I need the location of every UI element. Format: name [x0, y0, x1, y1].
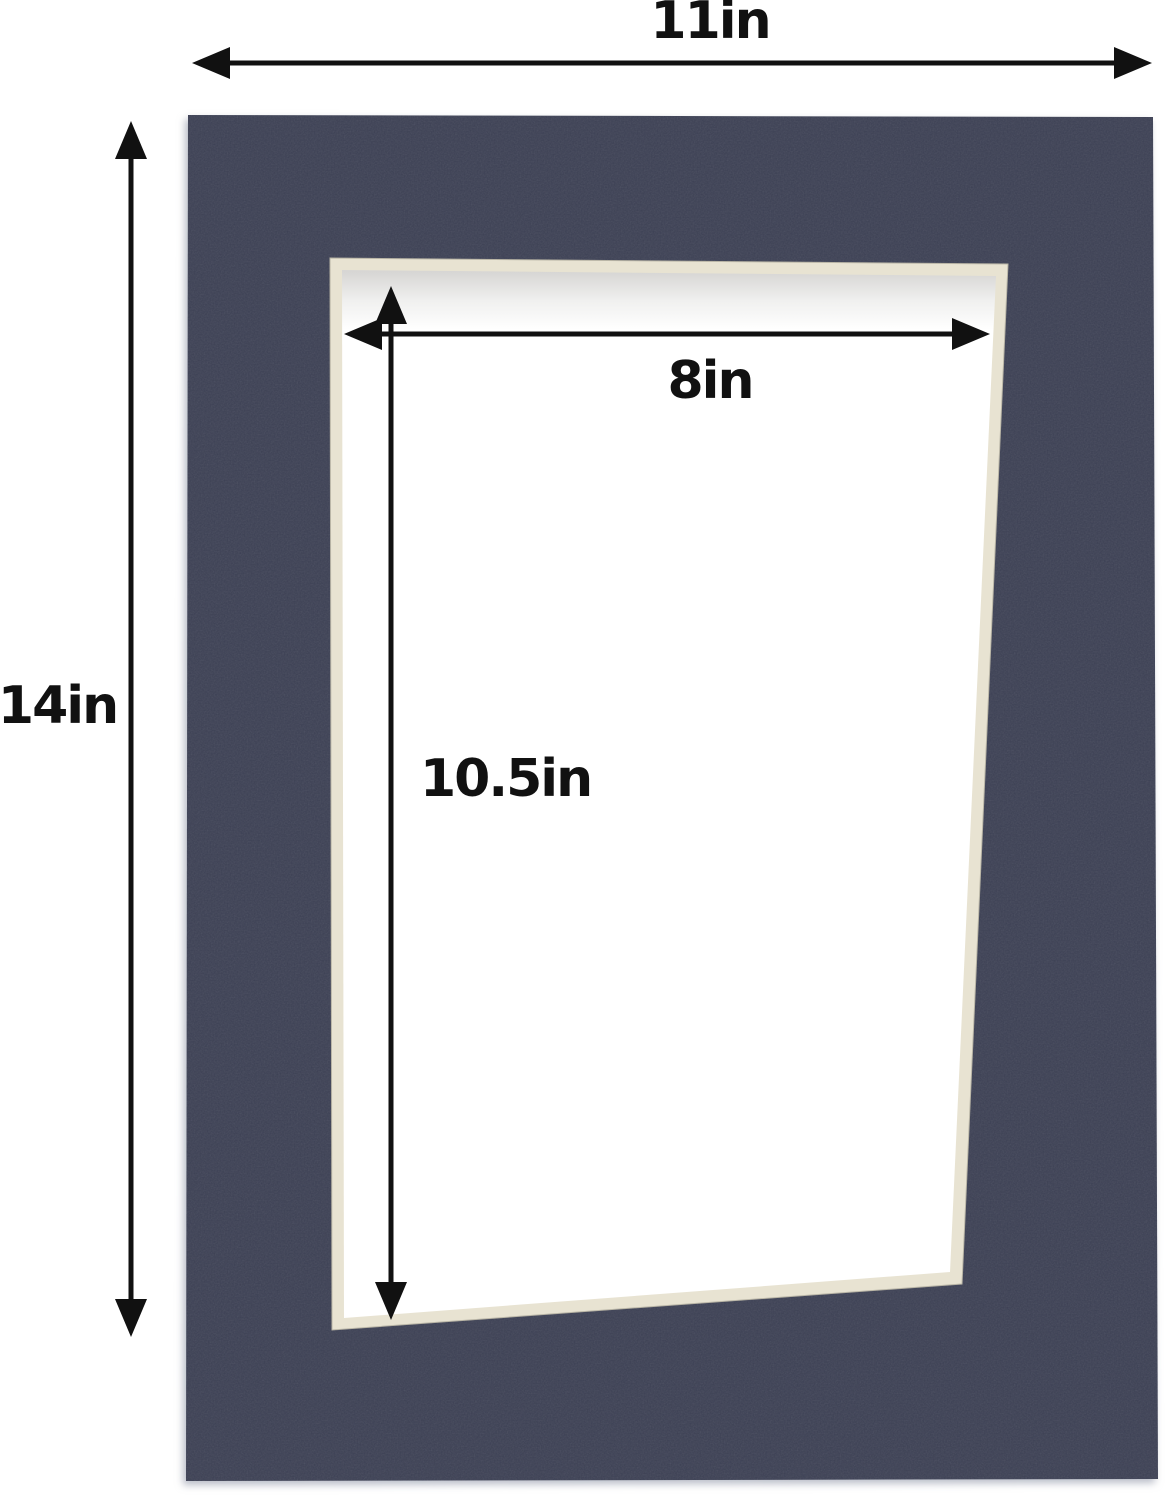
- outer-width-arrow: [192, 47, 1152, 79]
- opening-height-label: 10.5in: [420, 753, 591, 805]
- product-image: 11in 14in 8in 10.5in: [0, 0, 1168, 1500]
- arrow-left-head: [192, 47, 230, 79]
- arrow-down-head: [115, 1299, 147, 1337]
- outer-width-label: 11in: [590, 0, 830, 47]
- opening-width-label: 8in: [590, 355, 830, 407]
- arrow-right-head: [1114, 47, 1152, 79]
- arrow-up-head: [115, 121, 147, 159]
- outer-height-label: 14in: [0, 680, 120, 732]
